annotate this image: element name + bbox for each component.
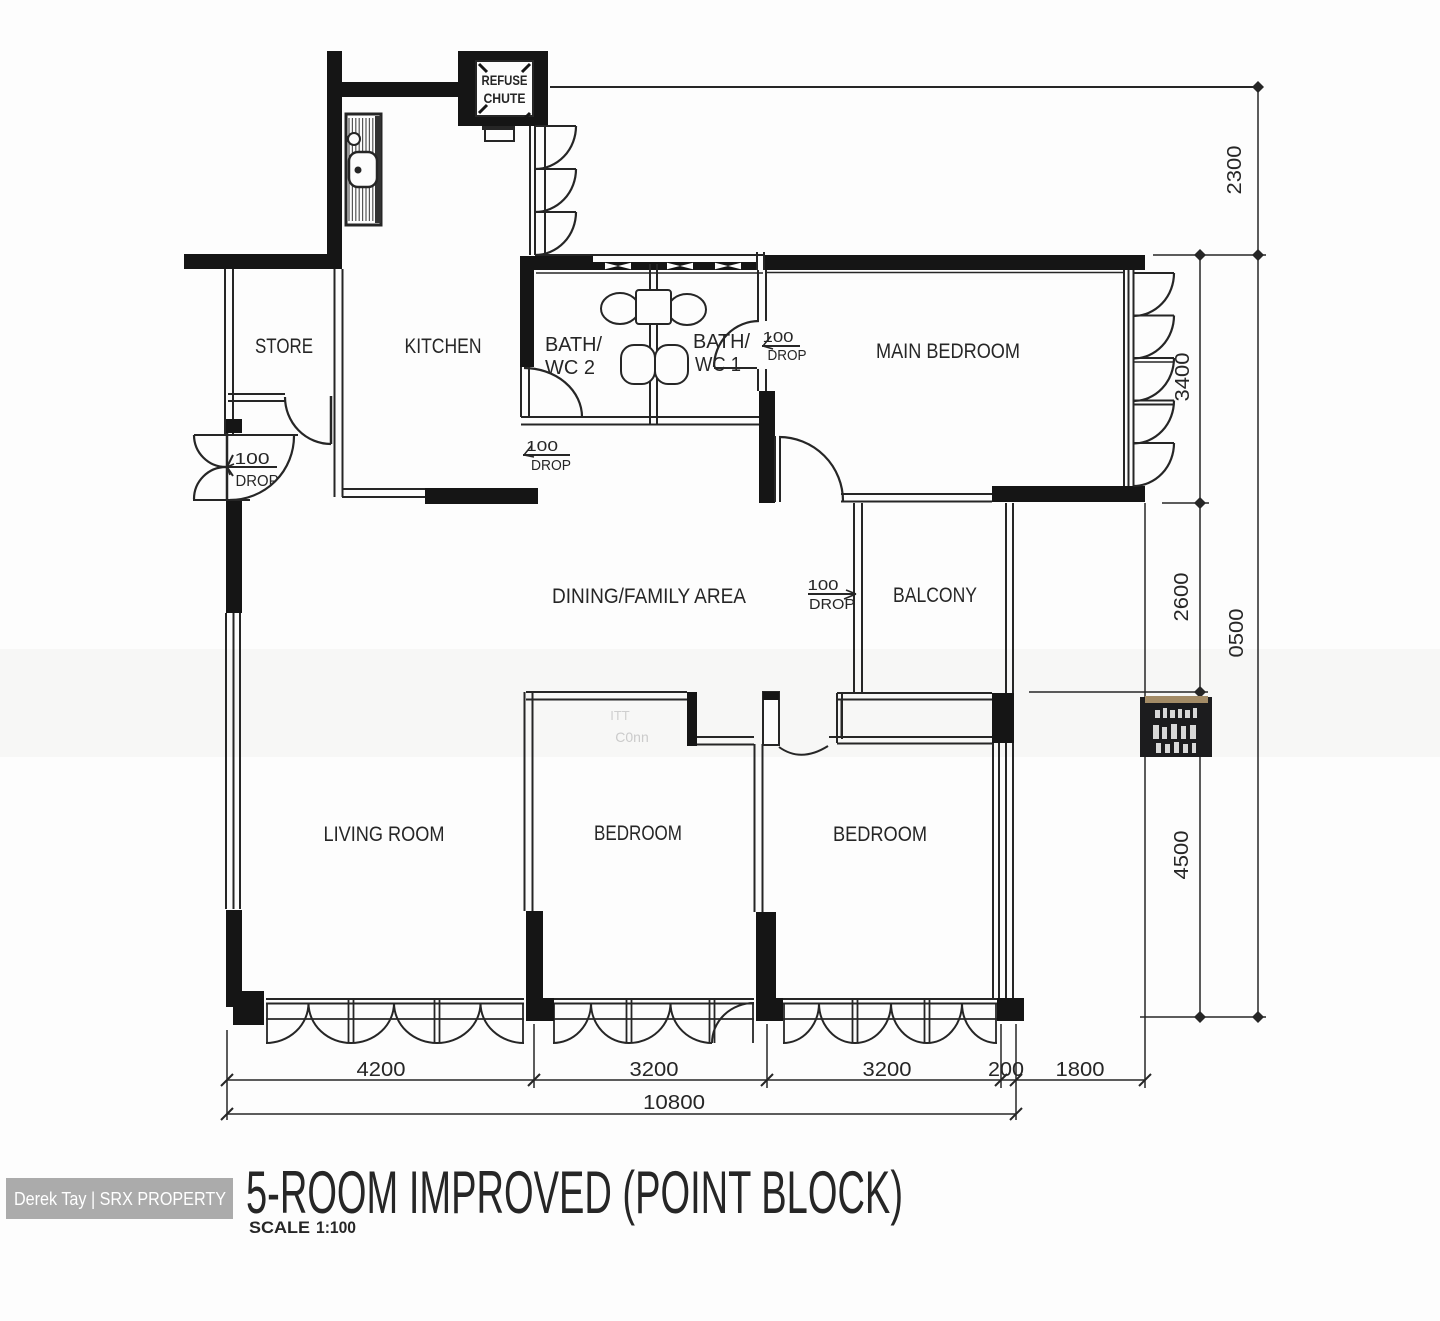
svg-text:1:100: 1:100: [316, 1218, 356, 1237]
svg-text:0500: 0500: [1226, 609, 1248, 658]
svg-text:SCALE: SCALE: [249, 1218, 310, 1237]
svg-text:REFUSE: REFUSE: [482, 72, 528, 88]
svg-text:1800: 1800: [1056, 1059, 1105, 1081]
svg-text:WC 2: WC 2: [545, 357, 595, 379]
svg-text:BALCONY: BALCONY: [893, 584, 977, 607]
svg-text:BEDROOM: BEDROOM: [833, 823, 927, 846]
svg-text:100: 100: [763, 329, 794, 346]
svg-text:C0nn: C0nn: [615, 729, 648, 745]
svg-text:LIVING ROOM: LIVING ROOM: [324, 823, 445, 846]
svg-text:100: 100: [808, 577, 839, 594]
svg-text:KITCHEN: KITCHEN: [405, 335, 482, 358]
svg-text:DROP: DROP: [531, 457, 571, 474]
svg-text:4200: 4200: [357, 1059, 406, 1081]
svg-text:CHUTE: CHUTE: [484, 90, 526, 106]
svg-text:DROP: DROP: [809, 596, 855, 613]
svg-text:2600: 2600: [1171, 573, 1193, 622]
svg-text:4500: 4500: [1171, 831, 1193, 880]
svg-text:2300: 2300: [1224, 146, 1246, 195]
svg-text:3200: 3200: [630, 1059, 679, 1081]
svg-text:DROP: DROP: [236, 473, 279, 490]
svg-text:10800: 10800: [643, 1092, 705, 1114]
svg-text:MAIN BEDROOM: MAIN BEDROOM: [876, 340, 1020, 363]
svg-text:BEDROOM: BEDROOM: [594, 822, 682, 845]
svg-text:3200: 3200: [863, 1059, 912, 1081]
svg-text:3400: 3400: [1172, 353, 1194, 402]
svg-text:STORE: STORE: [255, 335, 313, 358]
svg-text:BATH/: BATH/: [545, 334, 602, 356]
svg-text:200: 200: [988, 1059, 1024, 1081]
svg-text:WC 1: WC 1: [695, 354, 741, 376]
svg-text:100: 100: [235, 451, 270, 468]
svg-text:Derek Tay | SRX PROPERTY: Derek Tay | SRX PROPERTY: [14, 1189, 226, 1209]
svg-text:5-ROOM IMPROVED (POINT BLOCK): 5-ROOM IMPROVED (POINT BLOCK): [246, 1159, 903, 1226]
svg-text:DINING/FAMILY AREA: DINING/FAMILY AREA: [552, 585, 746, 608]
svg-text:ITT: ITT: [610, 708, 630, 723]
svg-text:DROP: DROP: [768, 347, 807, 364]
